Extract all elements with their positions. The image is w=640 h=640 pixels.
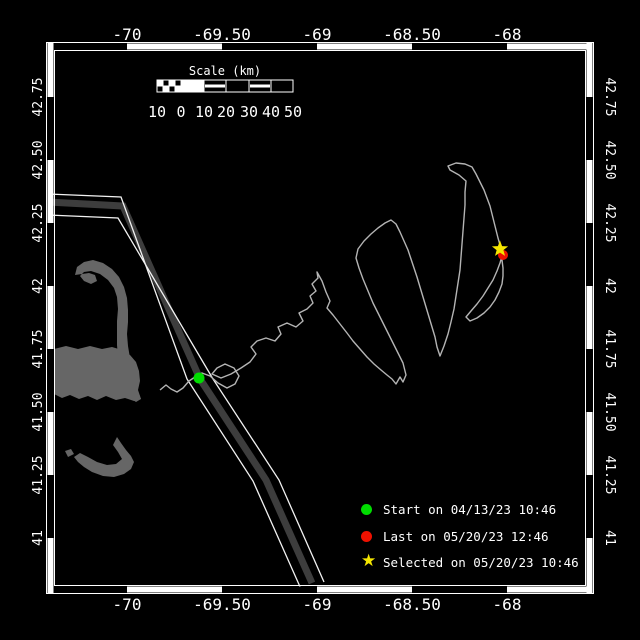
legend-selected-label: Selected on 05/20/23 10:46 [383, 555, 579, 570]
scalebar-checker-cell [169, 80, 175, 86]
landmass-islet [65, 449, 74, 457]
lat-tick-label-right: 41.75 [602, 329, 617, 368]
frame-band-left [48, 286, 54, 349]
lat-tick-label-right: 41.25 [602, 455, 617, 494]
lat-tick-label-right: 41.50 [602, 392, 617, 431]
lat-tick-label-left: 42 [31, 278, 46, 294]
lon-tick-label-bottom: -69 [303, 595, 332, 614]
landmass-cape-cod-arm [54, 346, 141, 401]
scalebar-checker-cell [175, 80, 181, 86]
scalebar-segment [181, 80, 204, 92]
lat-tick-label-left: 41.75 [31, 329, 46, 368]
lon-tick-label-top: -69.50 [193, 25, 251, 44]
map-canvas[interactable]: -70-69.50-69-68.50-68-70-69.50-69-68.50-… [0, 0, 640, 640]
scalebar-checker-cell [157, 86, 163, 92]
frame-band-right [587, 475, 593, 538]
scalebar-checker-cell [157, 80, 163, 86]
scalebar-label: 10 [195, 103, 213, 121]
frame-band-top [507, 44, 592, 50]
lon-tick-label-top: -68 [493, 25, 522, 44]
selected-star-icon: ★ [361, 557, 383, 568]
frame-band-left [48, 43, 54, 97]
scalebar-segment [271, 80, 293, 92]
scalebar-label: 0 [176, 103, 185, 121]
frame-band-bottom [48, 587, 127, 593]
glider-track-map-window: -70-69.50-69-68.50-68-70-69.50-69-68.50-… [0, 0, 640, 640]
frame-band-left [48, 223, 54, 286]
last-dot-icon [361, 531, 383, 542]
frame-band-bottom [507, 587, 592, 593]
frame-band-bottom [127, 587, 222, 593]
lon-tick-label-top: -68.50 [383, 25, 441, 44]
frame-band-left [48, 412, 54, 475]
legend-last-label: Last on 05/20/23 12:46 [383, 529, 549, 544]
frame-band-left [48, 97, 54, 160]
legend-start-label: Start on 04/13/23 10:46 [383, 502, 556, 517]
frame-band-right [587, 223, 593, 286]
lat-tick-label-right: 42.75 [602, 77, 617, 116]
scalebar-checker-cell [169, 86, 175, 92]
frame-band-bottom [412, 587, 507, 593]
frame-band-right [587, 286, 593, 349]
lon-tick-label-bottom: -70 [113, 595, 142, 614]
lat-tick-label-left: 42.50 [31, 140, 46, 179]
lat-tick-label-right: 41 [602, 530, 617, 546]
scalebar-label: 20 [217, 103, 235, 121]
frame-band-top [317, 44, 412, 50]
start-marker[interactable] [194, 373, 205, 384]
lat-tick-label-right: 42.25 [602, 203, 617, 242]
frame-band-bottom [222, 587, 317, 593]
frame-band-left [48, 475, 54, 538]
scalebar-segment [226, 80, 249, 92]
legend-item-last: Last on 05/20/23 12:46 [361, 528, 549, 544]
scalebar-checker-cell [163, 86, 169, 92]
scalebar-checker-cell [163, 80, 169, 86]
frame-band-left [48, 538, 54, 593]
scalebar-label: 10 [148, 103, 166, 121]
lon-tick-label-bottom: -68 [493, 595, 522, 614]
landmass-nantucket [74, 437, 134, 477]
lat-tick-label-left: 42.75 [31, 77, 46, 116]
lat-tick-label-left: 41.50 [31, 392, 46, 431]
legend-item-start: Start on 04/13/23 10:46 [361, 501, 556, 517]
frame-band-bottom [317, 587, 412, 593]
map-content [48, 163, 508, 589]
frame-band-left [48, 160, 54, 223]
lat-tick-label-left: 41 [31, 530, 46, 546]
frame-band-right [587, 538, 593, 593]
scalebar-label: 40 [262, 103, 280, 121]
lon-tick-label-top: -69 [303, 25, 332, 44]
frame-band-top [412, 44, 507, 50]
frame-band-left [48, 349, 54, 412]
lat-tick-label-right: 42 [602, 278, 617, 294]
lon-tick-label-top: -70 [113, 25, 142, 44]
scalebar-title: Scale (km) [189, 64, 261, 78]
lat-tick-label-right: 42.50 [602, 140, 617, 179]
frame-band-right [587, 349, 593, 412]
scalebar-stripe [205, 85, 225, 88]
frame-band-right [587, 43, 593, 97]
legend-item-selected: ★ Selected on 05/20/23 10:46 [361, 554, 579, 570]
glider-track-line[interactable] [160, 163, 503, 392]
lat-tick-label-left: 42.25 [31, 203, 46, 242]
frame-band-top [127, 44, 222, 50]
start-dot-icon [361, 504, 383, 515]
lon-tick-label-bottom: -68.50 [383, 595, 441, 614]
lon-tick-label-bottom: -69.50 [193, 595, 251, 614]
frame-band-right [587, 160, 593, 223]
lat-tick-label-left: 41.25 [31, 455, 46, 494]
scalebar-label: 30 [240, 103, 258, 121]
scalebar-stripe [250, 85, 270, 88]
frame-band-top [222, 44, 317, 50]
frame-band-top [48, 44, 127, 50]
scalebar-label: 50 [284, 103, 302, 121]
scalebar-checker-cell [175, 86, 181, 92]
frame-band-right [587, 412, 593, 475]
frame-band-right [587, 97, 593, 160]
